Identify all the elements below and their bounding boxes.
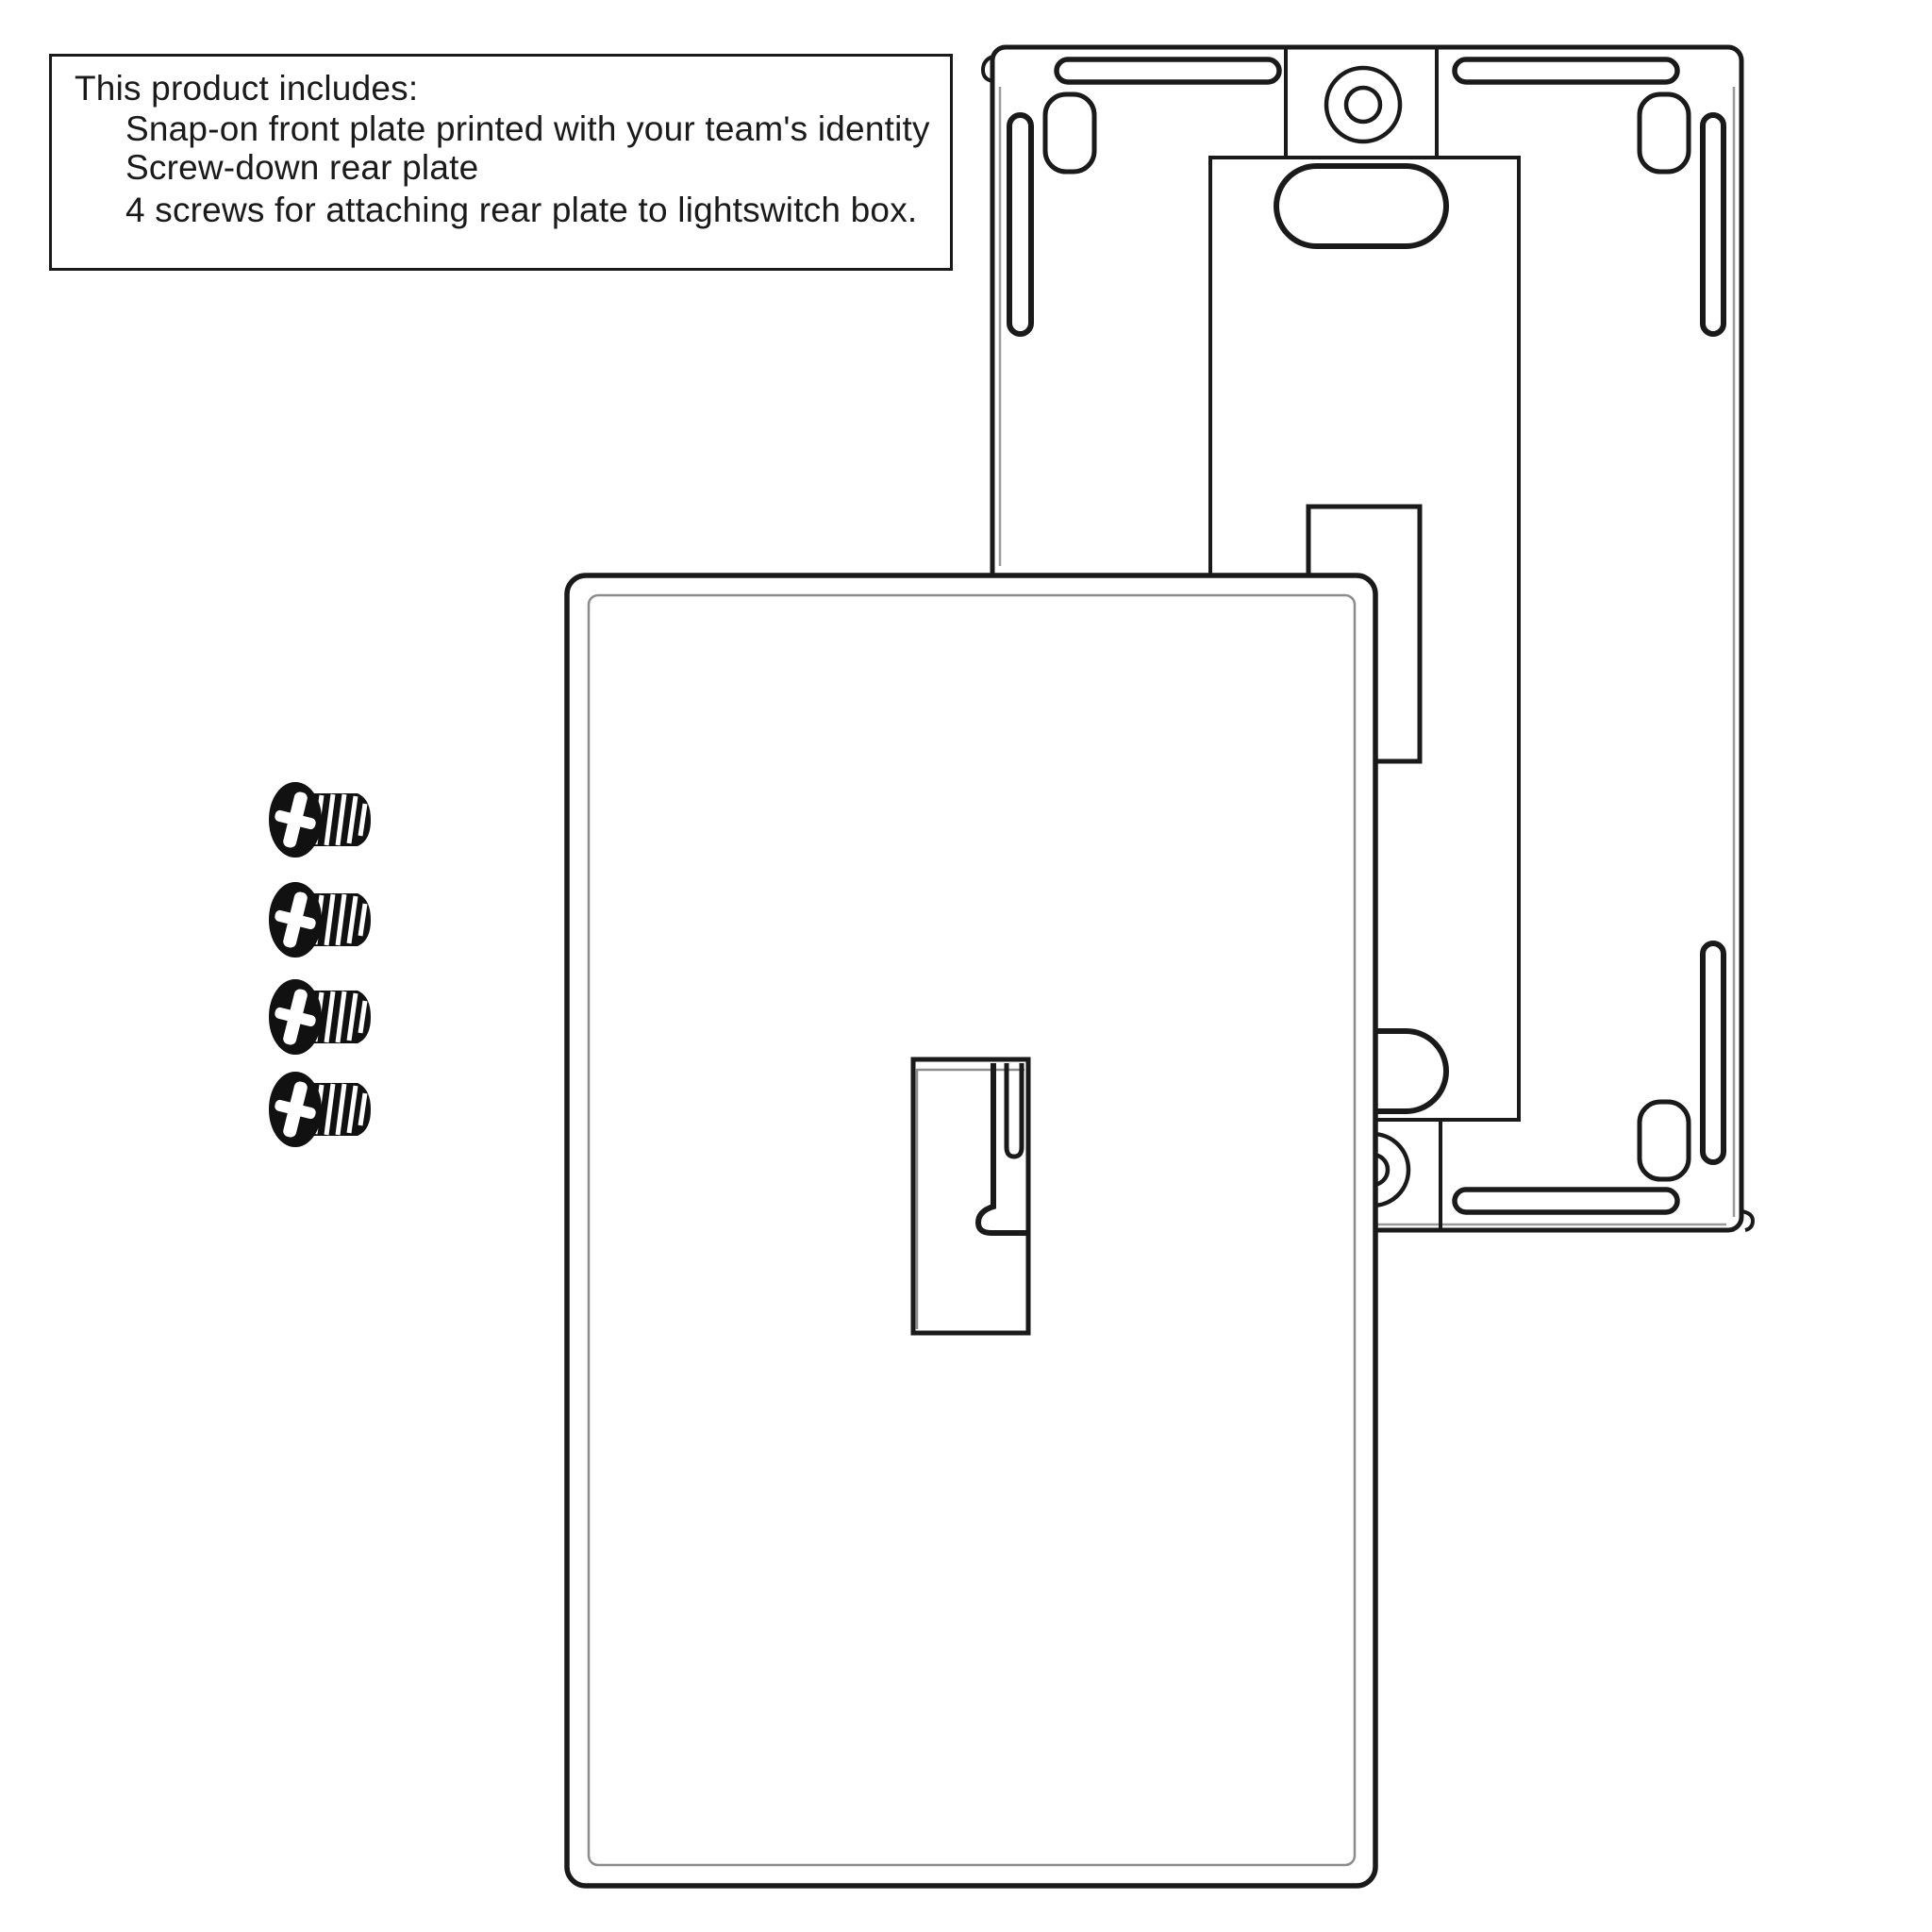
screw-4 [268,1074,371,1145]
screw-3 [268,981,371,1053]
screws [268,784,371,1145]
screw-2 [268,884,371,956]
toggle-opening [913,1059,1028,1333]
info-box-item-front-plate: Snap-on front plate printed with your te… [125,109,931,148]
info-box: This product includes: Snap-on front pla… [49,54,953,271]
screw-1 [268,784,371,856]
lightswitch-plate-diagram [0,0,1932,1932]
front-plate [567,575,1375,1886]
info-box-item-screws: 4 screws for attaching rear plate to lig… [125,191,931,229]
panel-top-oval-cutout [1276,166,1446,246]
top-screw-hole-center [1346,88,1380,122]
info-box-item-rear-plate: Screw-down rear plate [125,148,931,187]
product-diagram-page: This product includes: Snap-on front pla… [0,0,1932,1932]
info-box-title: This product includes: [75,68,931,109]
